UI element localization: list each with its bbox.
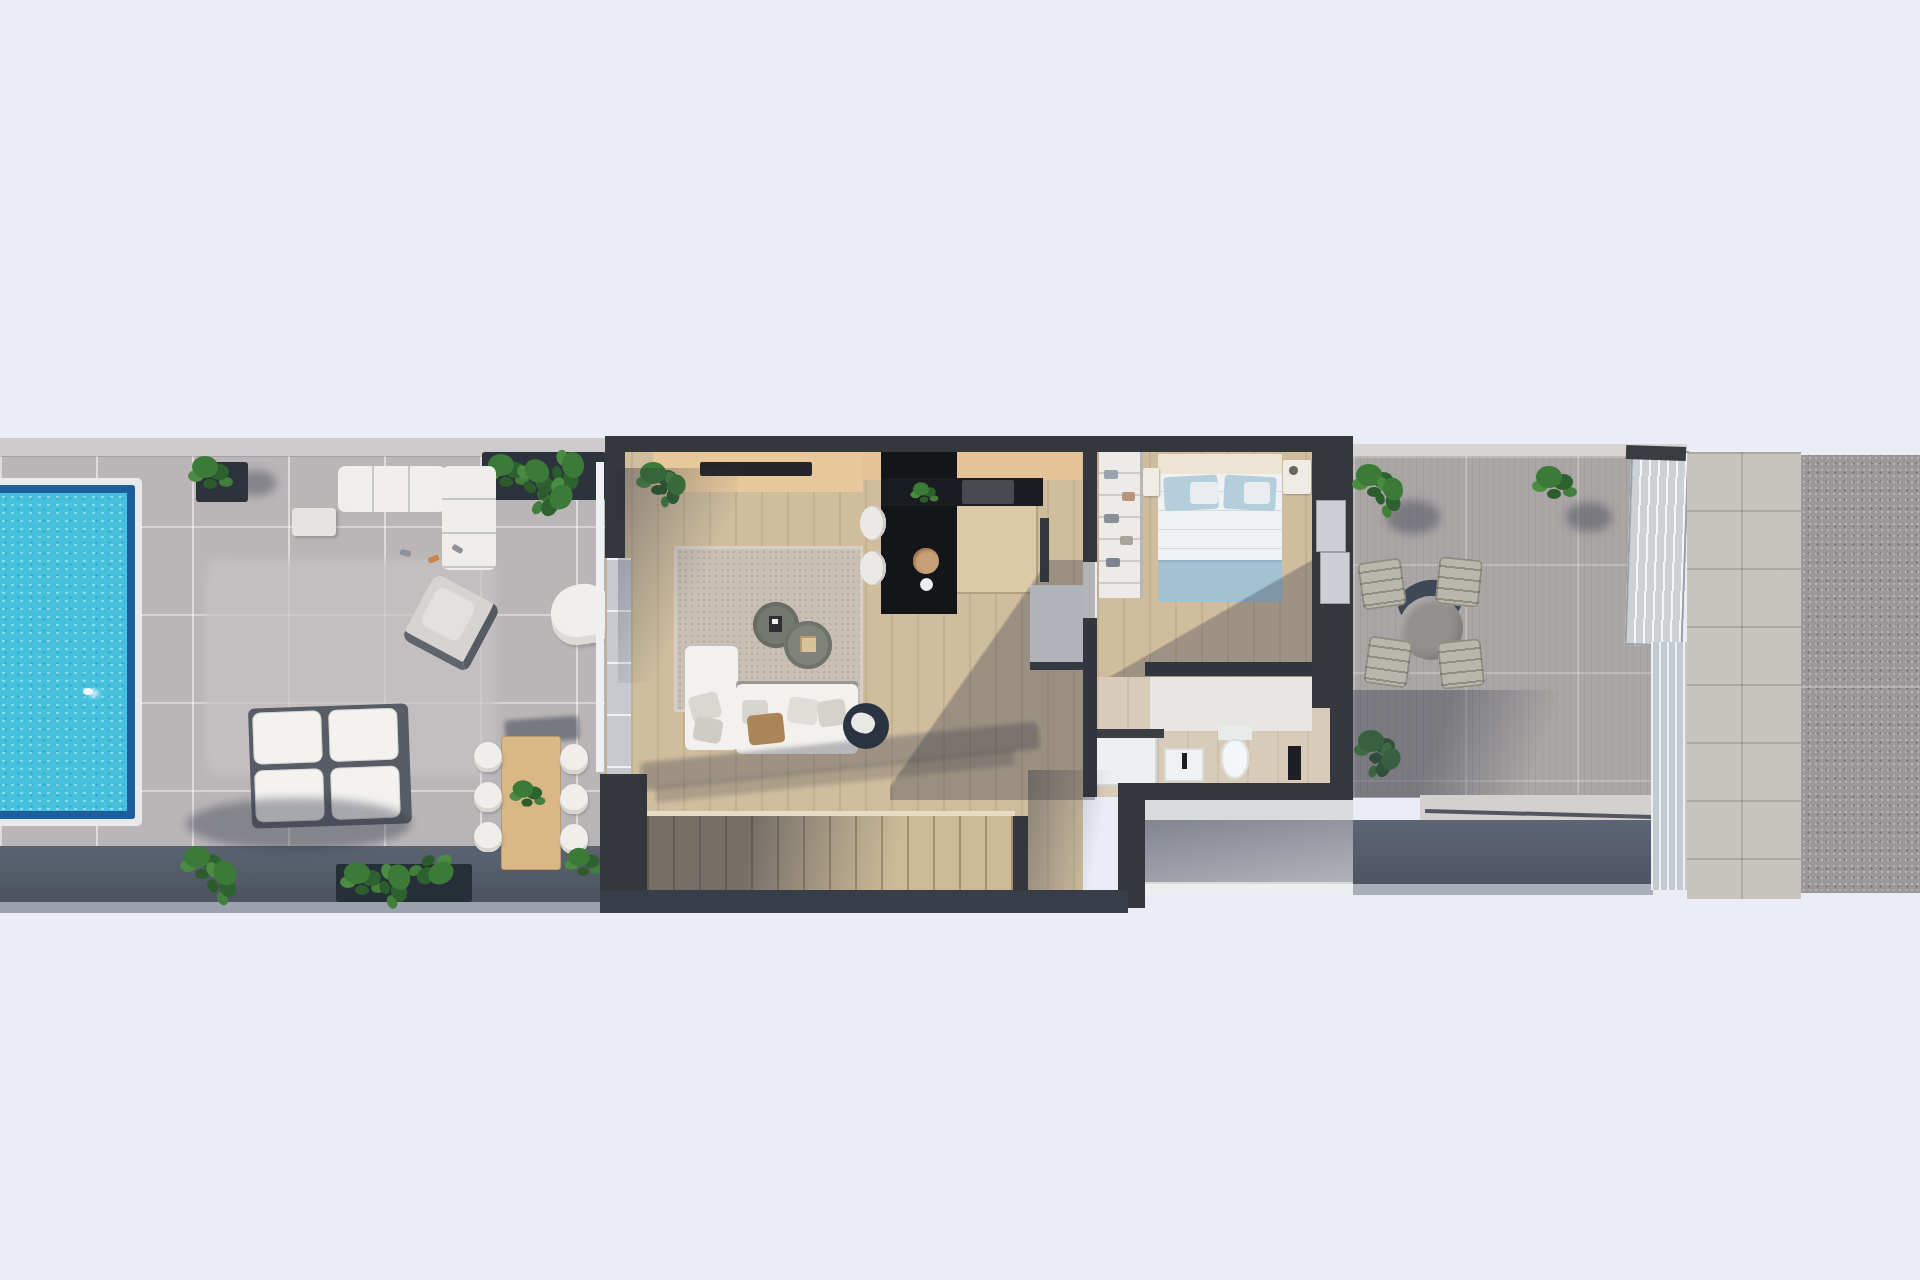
sink-faucet [1182, 753, 1187, 769]
kitchen-bowl [920, 578, 933, 591]
floorplan-render [0, 0, 1920, 1280]
stone-walkway [1687, 452, 1801, 899]
navy-swivel-chair [843, 703, 889, 749]
left-terrace-wall-light-strip [0, 902, 607, 913]
terrace-plant [1536, 466, 1562, 488]
sunlounger-pad [252, 710, 323, 764]
table-plant [513, 780, 534, 798]
wardrobe-item [1106, 558, 1120, 567]
dining-chair [560, 784, 588, 814]
wardrobe-item [1122, 492, 1135, 501]
pool-border [0, 485, 135, 819]
bed-throw [1158, 560, 1282, 602]
plant [184, 846, 210, 868]
terrace-plant [1356, 464, 1382, 486]
sunlounger-pad [328, 708, 399, 762]
lower-patio-shadow [1145, 820, 1353, 882]
kitchen-sink [913, 548, 939, 574]
corner-plant [668, 475, 686, 496]
shower-tray [1093, 736, 1157, 786]
wardrobe-item [1120, 536, 1133, 545]
plant [192, 456, 218, 478]
right-terrace-wall-light-strip [1353, 884, 1653, 895]
toilet-tank [1218, 726, 1252, 740]
plant-shadow [1386, 500, 1440, 534]
bed-headboard [1158, 454, 1282, 474]
pool-water [0, 493, 127, 811]
dining-chair [474, 822, 502, 852]
glass-door-left [607, 558, 631, 774]
outdoor-sofa-horizontal [338, 466, 446, 512]
pool-sparkle [83, 688, 93, 695]
coffee-table [784, 621, 832, 669]
tv [700, 462, 812, 476]
corner-plant [640, 462, 666, 484]
sofa-pillow [692, 716, 724, 744]
stair-landing-edge [1030, 662, 1085, 670]
wood-dining-table [501, 736, 561, 870]
plant [568, 848, 590, 867]
kitchen-island-wood [957, 506, 1038, 594]
nightstand [1283, 460, 1311, 494]
wardrobe-item [1104, 514, 1119, 523]
wall-bedroom-left [1083, 436, 1097, 562]
counter-plant [913, 482, 929, 496]
glass-fence [1651, 642, 1687, 890]
bed-pillow-small [1190, 482, 1218, 504]
kitchen-counter-black [881, 452, 957, 614]
sliding-door-panel [1320, 552, 1350, 604]
glass-door-header [1626, 445, 1686, 461]
terrace-plant [1358, 730, 1384, 752]
outdoor-sofa-vertical [442, 466, 496, 570]
wall-top [605, 436, 1353, 452]
wall-kitchen-stub [1040, 518, 1049, 582]
house-bottom-edge [600, 890, 1128, 913]
outdoor-chair [1363, 635, 1413, 689]
bedroom-door [1084, 562, 1096, 618]
shower-partition [1088, 729, 1164, 738]
kitchen-appliance [962, 480, 1014, 504]
outdoor-coffee-table [292, 508, 336, 536]
wall-bedroom-bottom [1145, 662, 1312, 676]
wall-left-upper [605, 452, 625, 558]
aggregate-joint-line [1801, 686, 1920, 688]
bar-stool [860, 506, 886, 540]
stair-landing [1030, 585, 1085, 665]
staircase-shadow [647, 816, 1013, 892]
toilet [1221, 739, 1249, 779]
bed-pillow-small [1244, 482, 1270, 504]
sofa-pillow [786, 696, 819, 726]
nightstand [1143, 468, 1159, 496]
lower-patio-edge [1145, 884, 1353, 893]
sunlounger-shadow [186, 798, 411, 850]
outdoor-chair [1435, 556, 1484, 608]
sliding-door-panel [1316, 500, 1346, 552]
dining-chair [474, 742, 502, 772]
swimming-pool [0, 478, 142, 826]
dining-chair [474, 782, 502, 812]
wall-bathroom-left [1083, 618, 1097, 797]
towel-stand [1288, 746, 1301, 780]
glass-entry-door [1625, 449, 1690, 647]
plant-shadow [236, 470, 276, 496]
right-terrace-wall-shadow-band [1353, 820, 1653, 886]
planter-plant [344, 862, 370, 884]
outdoor-chair [1357, 557, 1407, 611]
bar-stool [860, 551, 886, 585]
aggregate-strip [1801, 455, 1920, 893]
window-sill [596, 462, 604, 772]
wardrobe-item [1104, 470, 1118, 479]
dining-chair [560, 744, 588, 774]
bathroom-wall-face [1150, 677, 1312, 731]
bedside-lamp [1289, 466, 1298, 475]
plant-shadow [1566, 502, 1612, 532]
sofa-blanket [747, 712, 786, 746]
outdoor-chair [1437, 638, 1486, 690]
